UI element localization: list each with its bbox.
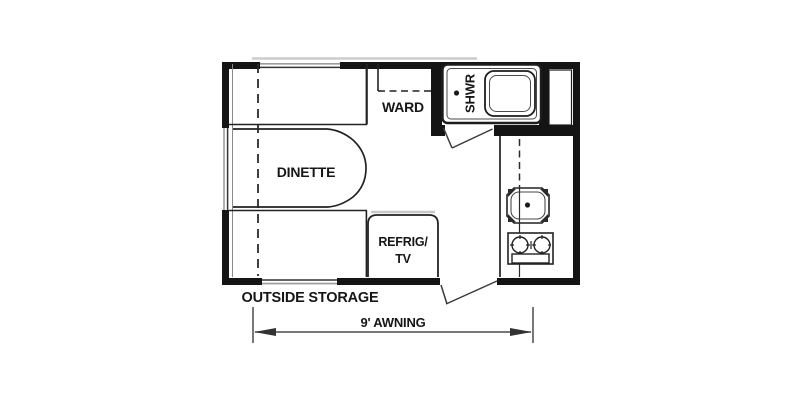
wardrobe-closet: [367, 64, 433, 125]
shower-drain: [454, 90, 459, 95]
window-left: [221, 128, 230, 210]
awning-label: 9' AWNING: [360, 315, 425, 330]
awning-arrow-left: [254, 328, 276, 336]
shower-tub: [485, 71, 535, 116]
wardrobe-label: WARD: [382, 99, 424, 115]
wall-right: [573, 62, 580, 285]
bath-cabinet: [549, 70, 572, 125]
dinette-bench-front: [229, 65, 367, 125]
bath-wall-left: [431, 62, 442, 136]
window-top: [260, 61, 340, 70]
shower-stall: [443, 65, 542, 124]
dinette-label: DINETTE: [277, 164, 336, 180]
floorplan-canvas: DINETTE WARD SHWR REFRIG/ TV: [0, 0, 800, 400]
shower-label: SHWR: [463, 73, 478, 113]
refrig-label-line2: TV: [395, 252, 411, 266]
stove-broiler-bar: [512, 254, 549, 263]
storage-hatch-bottom: [262, 277, 337, 286]
dinette-bench-rear: [229, 211, 367, 278]
bath-door-opening: [445, 125, 494, 136]
refrig-label-line1: REFRIG/: [378, 235, 428, 249]
stove-cooktop: [508, 233, 553, 264]
trailer-floorplan: DINETTE WARD SHWR REFRIG/ TV: [0, 0, 800, 400]
sink-drain: [525, 202, 530, 207]
outside-storage-label: OUTSIDE STORAGE: [242, 290, 379, 306]
awning-arrow-right: [510, 328, 532, 336]
